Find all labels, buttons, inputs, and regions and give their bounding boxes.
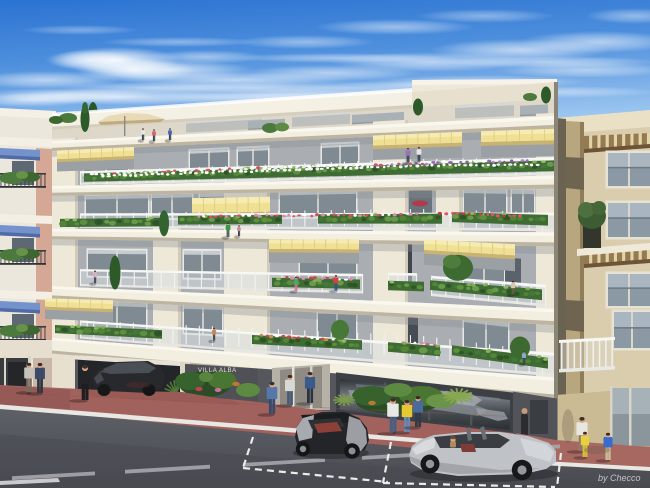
svg-text:by Checco: by Checco	[598, 473, 641, 483]
svg-text:VILLA ALBA: VILLA ALBA	[198, 368, 237, 374]
